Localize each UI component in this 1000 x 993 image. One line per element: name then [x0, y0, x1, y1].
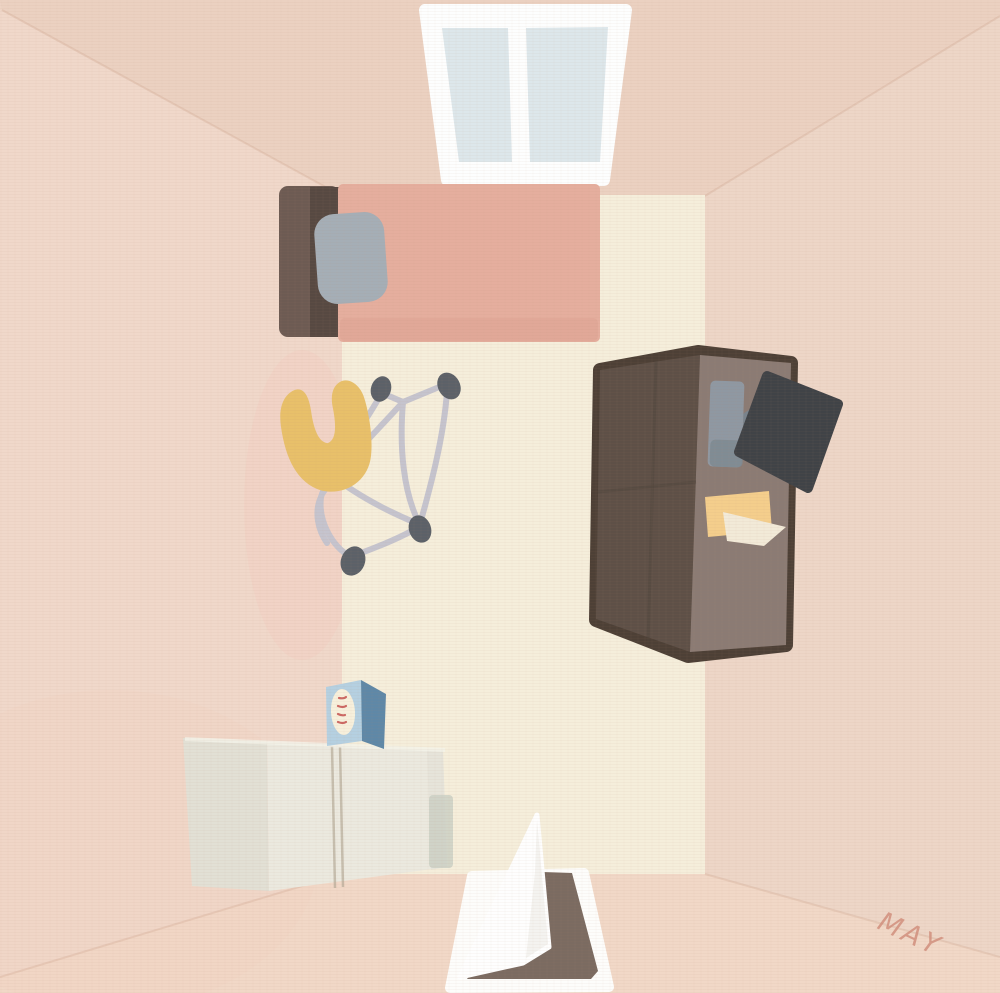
bed-pillow — [313, 211, 389, 306]
dresser-side — [183, 738, 269, 891]
supply-box — [326, 680, 386, 749]
dresser-front — [267, 742, 447, 891]
bed — [279, 184, 600, 342]
bed-blanket-shade — [340, 318, 598, 341]
room-scene: MAY — [0, 0, 1000, 993]
window — [425, 10, 626, 180]
dresser — [183, 738, 447, 891]
room-illustration: MAY — [0, 0, 1000, 993]
window-right-pane — [526, 27, 608, 162]
floor-mat-shadow — [429, 795, 453, 868]
